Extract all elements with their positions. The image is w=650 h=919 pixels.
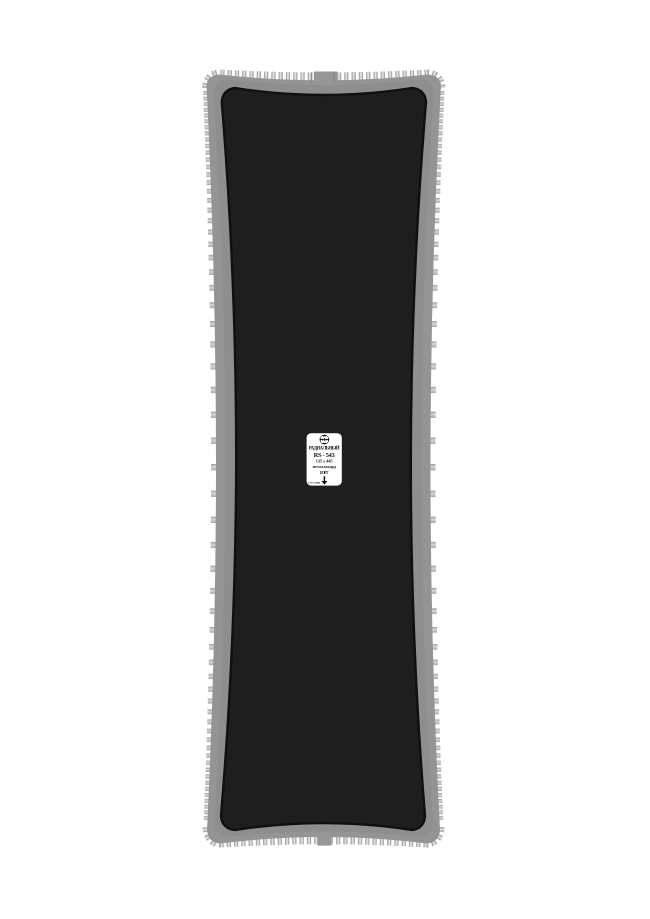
svg-text:РАДИАЛЬНЫЙ: РАДИАЛЬНЫЙ	[309, 446, 340, 452]
svg-text:РОССВИК: РОССВИК	[308, 482, 320, 485]
svg-text:135 х 445: 135 х 445	[316, 459, 333, 464]
svg-text:металлокорд: металлокорд	[313, 465, 336, 469]
svg-text:БОРТ: БОРТ	[320, 471, 329, 475]
